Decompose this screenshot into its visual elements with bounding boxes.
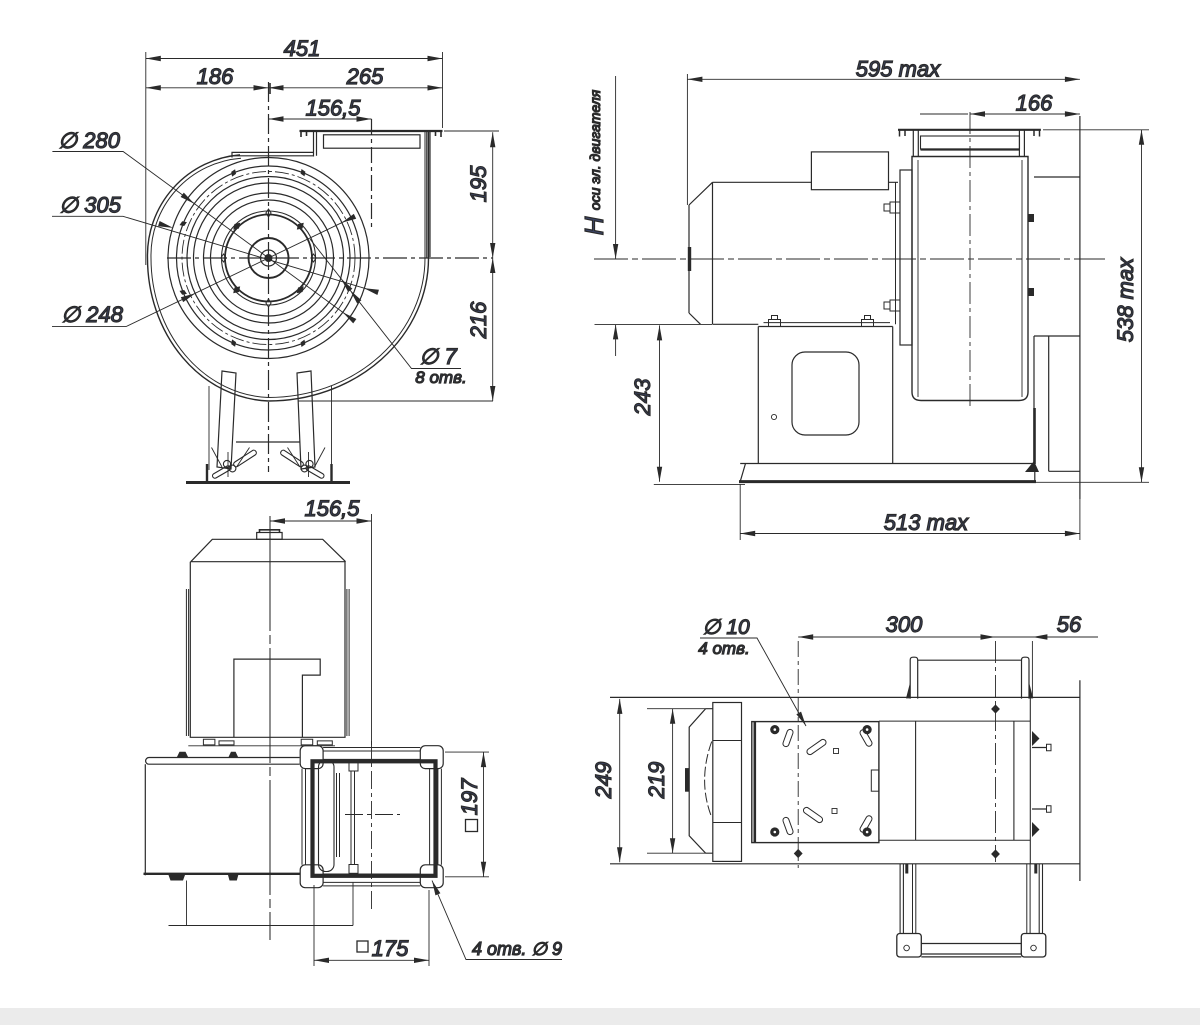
svg-text:243: 243 bbox=[630, 378, 655, 416]
svg-text:8 отв.: 8 отв. bbox=[415, 368, 466, 387]
svg-text:249: 249 bbox=[591, 762, 616, 800]
svg-text:оси эл. двигателя: оси эл. двигателя bbox=[587, 89, 603, 210]
svg-text:197: 197 bbox=[457, 778, 482, 815]
svg-text:513 max: 513 max bbox=[884, 510, 969, 535]
svg-text:175: 175 bbox=[372, 936, 409, 961]
svg-text:4 отв.: 4 отв. bbox=[698, 639, 749, 658]
svg-text:195: 195 bbox=[466, 165, 491, 202]
svg-text:∅ 10: ∅ 10 bbox=[702, 616, 750, 639]
svg-text:∅ 7: ∅ 7 bbox=[419, 344, 457, 369]
svg-text:∅ 305: ∅ 305 bbox=[59, 193, 122, 218]
svg-text:156,5: 156,5 bbox=[305, 96, 361, 121]
svg-text:216: 216 bbox=[466, 301, 491, 339]
svg-text:265: 265 bbox=[346, 64, 384, 89]
svg-text:219: 219 bbox=[644, 762, 669, 800]
svg-text:538 max: 538 max bbox=[1113, 257, 1138, 342]
svg-text:300: 300 bbox=[886, 612, 923, 637]
svg-text:186: 186 bbox=[197, 64, 234, 89]
svg-text:595 max: 595 max bbox=[856, 57, 941, 82]
svg-text:166: 166 bbox=[1016, 91, 1053, 116]
svg-text:56: 56 bbox=[1057, 612, 1082, 637]
svg-text:156,5: 156,5 bbox=[304, 496, 360, 521]
svg-text:∅ 248: ∅ 248 bbox=[61, 302, 124, 327]
svg-text:Н: Н bbox=[579, 216, 609, 235]
svg-text:∅ 280: ∅ 280 bbox=[58, 128, 121, 153]
svg-text:451: 451 bbox=[284, 36, 321, 61]
svg-text:4 отв. ∅ 9: 4 отв. ∅ 9 bbox=[472, 939, 562, 959]
